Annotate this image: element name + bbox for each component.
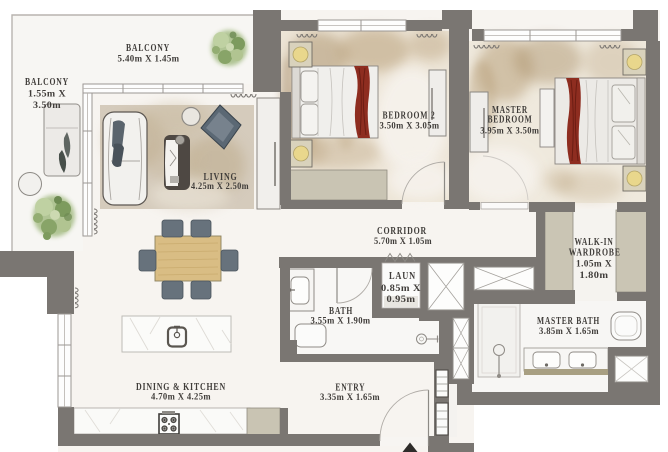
svg-text:5.40m X 1.45m: 5.40m X 1.45m (118, 55, 180, 65)
svg-text:0.95m: 0.95m (387, 295, 416, 305)
svg-text:BATH: BATH (329, 306, 353, 317)
svg-text:BALCONY: BALCONY (126, 43, 170, 54)
svg-text:ENTRY: ENTRY (335, 383, 365, 394)
svg-text:MASTER BATH: MASTER BATH (537, 316, 600, 327)
svg-text:4.25m X 2.50m: 4.25m X 2.50m (191, 182, 249, 192)
svg-text:4.70m X 4.25m: 4.70m X 4.25m (151, 393, 211, 403)
svg-text:5.70m X 1.05m: 5.70m X 1.05m (374, 237, 432, 247)
svg-text:1.55m X: 1.55m X (28, 90, 66, 100)
svg-text:WARDROBE: WARDROBE (569, 248, 621, 259)
svg-text:3.35m X 1.65m: 3.35m X 1.65m (320, 393, 380, 403)
svg-text:CORRIDOR: CORRIDOR (377, 226, 427, 237)
svg-text:3.50m: 3.50m (33, 101, 61, 111)
svg-text:3.55m X 1.90m: 3.55m X 1.90m (311, 317, 371, 327)
svg-text:BEDROOM: BEDROOM (488, 115, 533, 126)
svg-text:LAUN: LAUN (389, 271, 416, 282)
svg-text:3.85m X 1.65m: 3.85m X 1.65m (539, 327, 599, 337)
svg-text:1.80m: 1.80m (580, 271, 609, 281)
svg-text:WALK-IN: WALK-IN (575, 237, 614, 248)
svg-text:3.95m X 3.50m: 3.95m X 3.50m (480, 127, 539, 137)
svg-text:1.05m X: 1.05m X (576, 260, 612, 270)
svg-text:3.50m X 3.05m: 3.50m X 3.05m (380, 122, 440, 132)
svg-text:BALCONY: BALCONY (25, 77, 69, 88)
svg-text:0.85m X: 0.85m X (381, 284, 421, 294)
svg-text:BEDROOM 2: BEDROOM 2 (383, 111, 436, 122)
svg-text:DINING & KITCHEN: DINING & KITCHEN (136, 382, 226, 393)
